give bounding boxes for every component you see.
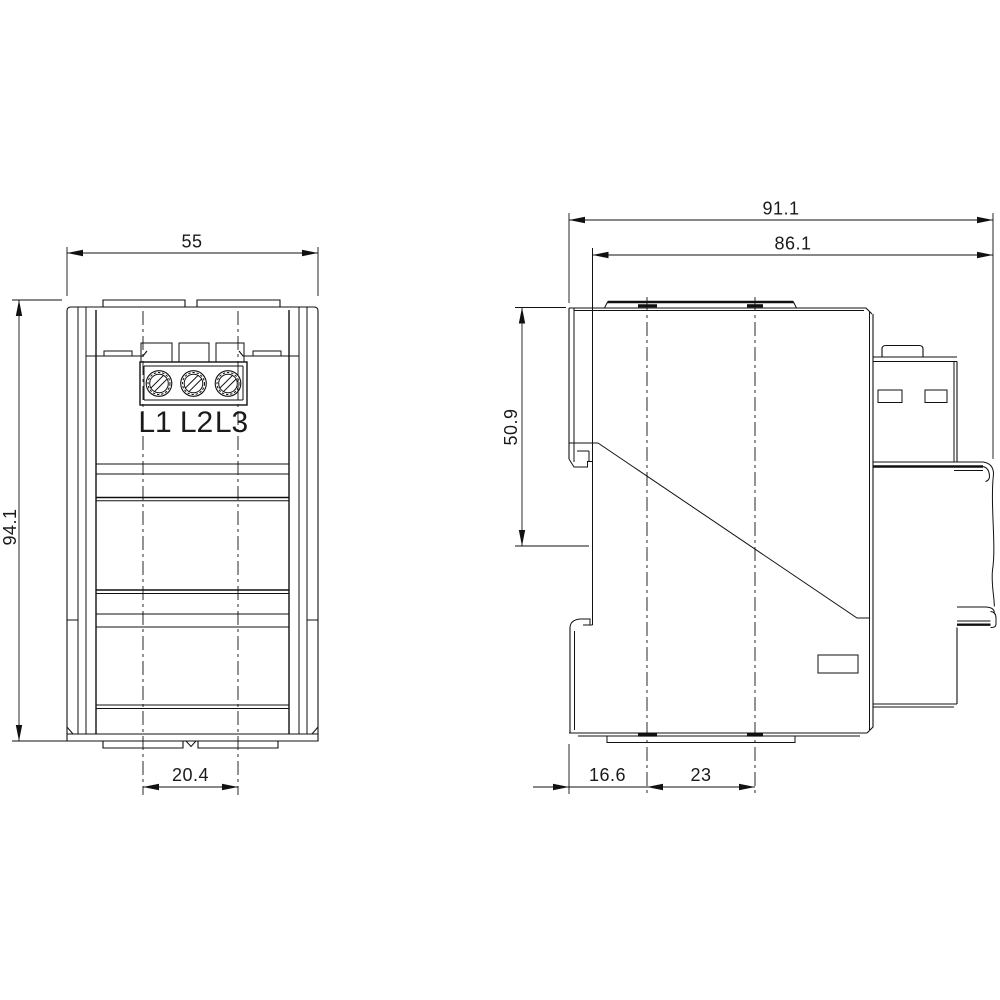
dimension-label-side-body-depth: 86.1 xyxy=(774,234,811,254)
dimension-drawing-svg: L1 L2 L3 xyxy=(0,0,1000,1000)
dimension-side-upper-height: 50.9 xyxy=(501,308,589,547)
dimension-label-front-width: 55 xyxy=(181,232,202,252)
side-body-outline xyxy=(569,248,873,736)
front-ribs xyxy=(96,464,289,627)
dimension-front-width: 55 xyxy=(67,232,318,297)
terminal-screw-l2 xyxy=(181,371,207,397)
dimension-label-side-overall-depth: 91.1 xyxy=(762,199,799,219)
dimension-label-front-height: 94.1 xyxy=(0,508,20,545)
dimension-label-side-front-offset: 16.6 xyxy=(589,765,626,785)
dimension-front-tab-spacing: 20.4 xyxy=(143,765,238,790)
dimension-label-front-tab-spacing: 20.4 xyxy=(172,765,209,785)
side-label-window xyxy=(818,655,858,673)
dimension-side-center-offsets: 16.6 23 xyxy=(533,744,755,794)
side-vent-window-1 xyxy=(878,390,902,403)
front-view: L1 L2 L3 xyxy=(0,232,318,796)
terminal-label-l3: L3 xyxy=(215,406,248,439)
side-center-lines xyxy=(647,297,755,795)
side-vent-window-2 xyxy=(925,390,947,403)
dimension-drawing-canvas: L1 L2 L3 xyxy=(0,0,1000,1000)
front-terminal-block xyxy=(140,343,247,405)
terminal-label-l2: L2 xyxy=(180,406,213,439)
dimension-label-side-center-spacing: 23 xyxy=(690,765,711,785)
terminal-screw-l1 xyxy=(146,371,172,397)
dimension-side-body-depth: 86.1 xyxy=(593,234,994,259)
front-top-tabs xyxy=(103,300,280,307)
front-terminal-recess xyxy=(86,351,299,356)
dimension-label-side-upper-height: 50.9 xyxy=(501,408,521,445)
side-view: 91.1 86.1 50.9 16.6 23 xyxy=(501,199,996,796)
side-din-rail-section xyxy=(873,346,996,708)
terminal-screw-l3 xyxy=(215,371,241,397)
side-top-strip xyxy=(605,302,797,308)
